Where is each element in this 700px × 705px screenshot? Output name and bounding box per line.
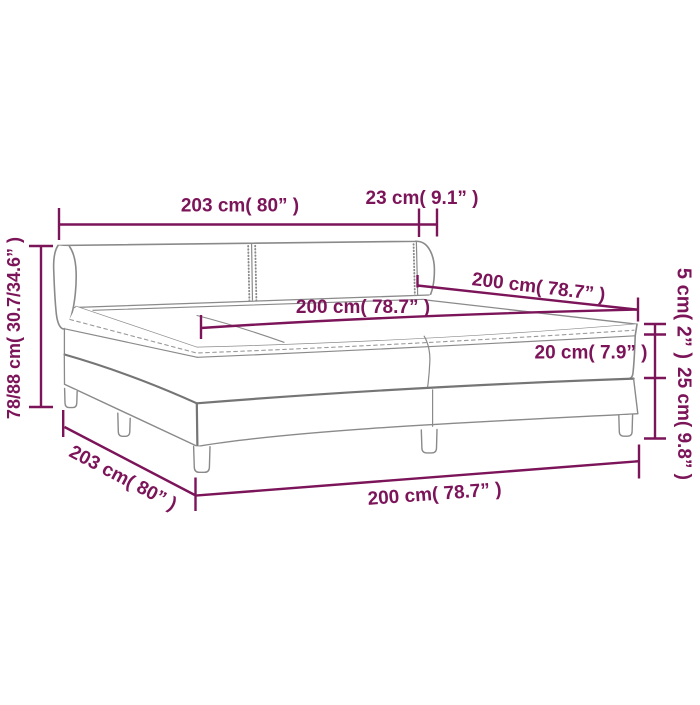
svg-text:200 cm( 78.7” ): 200 cm( 78.7” ) [296, 297, 430, 318]
svg-text:23 cm( 9.1” ): 23 cm( 9.1” ) [366, 188, 479, 209]
svg-text:78/88 cm( 30.7/34.6” ): 78/88 cm( 30.7/34.6” ) [4, 237, 24, 419]
svg-text:5 cm( 2” ): 5 cm( 2” ) [673, 268, 695, 359]
svg-text:20 cm( 7.9” ): 20 cm( 7.9” ) [535, 343, 648, 364]
svg-text:25 cm( 9.8” ): 25 cm( 9.8” ) [673, 367, 694, 480]
svg-text:203 cm( 80” ): 203 cm( 80” ) [181, 196, 299, 217]
